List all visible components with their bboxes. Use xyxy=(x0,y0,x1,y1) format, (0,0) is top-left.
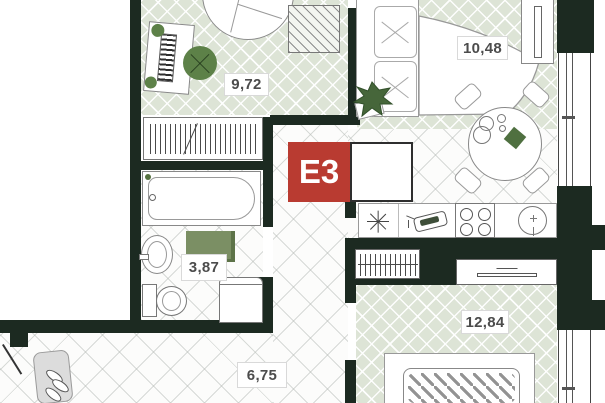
bathtub-inner xyxy=(148,177,255,220)
wall-right-column xyxy=(557,186,592,330)
wardrobe-hangers xyxy=(355,249,420,279)
tv-icon xyxy=(477,273,537,277)
bathtub xyxy=(142,171,261,226)
counter-divider xyxy=(398,204,399,237)
closet-hangers xyxy=(143,117,263,160)
dining-table xyxy=(468,107,542,181)
plate-icon xyxy=(473,126,491,144)
armchair-fold-line xyxy=(238,4,282,19)
toilet-tank xyxy=(142,284,157,317)
unit-code-badge: E3 xyxy=(288,142,350,202)
window-sill xyxy=(562,116,575,119)
cooktop xyxy=(455,203,495,238)
basin-inner xyxy=(147,241,167,268)
tap-line xyxy=(408,220,409,228)
washer-panel-line xyxy=(220,284,262,285)
wall-bath-right-upper xyxy=(263,161,273,227)
living-kitchen-area-label: 10,48 xyxy=(457,36,508,60)
tv-icon-top xyxy=(489,268,525,273)
hanging-clothes xyxy=(150,124,256,154)
wash-basin xyxy=(141,235,173,274)
wall-bedroom-left-lower xyxy=(345,360,356,403)
cup-icon xyxy=(499,125,506,132)
window-sill xyxy=(562,387,575,390)
burner-icon xyxy=(478,223,491,236)
tv-shelf xyxy=(456,259,557,285)
study-area-label: 9,72 xyxy=(224,73,269,96)
window-living xyxy=(558,53,591,186)
bathroom-area-label: 3,87 xyxy=(181,254,227,281)
wall-under-closet xyxy=(130,161,273,170)
burner-icon xyxy=(460,208,473,221)
toilet-bowl xyxy=(156,286,187,316)
wall-right-bump-upper xyxy=(592,225,605,250)
round-sink xyxy=(518,206,547,235)
tv-unit xyxy=(521,0,554,64)
bedroom-area-label: 12,84 xyxy=(461,310,509,334)
sink-cross xyxy=(530,218,537,219)
rail-line xyxy=(358,264,418,265)
cup-icon xyxy=(497,114,506,123)
washing-machine xyxy=(219,277,263,323)
wall-right-top xyxy=(557,0,594,53)
wall-mid-horizontal xyxy=(270,115,353,125)
faucet-icon xyxy=(404,209,454,234)
kitchen-sink-star-icon xyxy=(367,210,389,232)
wardrobe-hatched xyxy=(288,5,340,53)
toilet-bowl-inner xyxy=(162,291,181,311)
basin-tap xyxy=(139,254,149,260)
wall-right-bump-lower xyxy=(592,300,605,330)
wall-counter-stub xyxy=(345,201,356,218)
floor-plan: E3 9,72 10,48 3,87 6,75 12,84 xyxy=(0,0,605,403)
wall-entry-notch xyxy=(10,333,28,347)
wall-bedroom-left-upper xyxy=(345,285,356,303)
unit-badge-blank-box xyxy=(350,142,413,202)
desk-keyboard xyxy=(157,33,177,82)
tub-faucet-icon xyxy=(149,194,156,201)
tub-plant-dot xyxy=(145,174,151,180)
hallway-area-label: 6,75 xyxy=(237,362,287,388)
sink-drain xyxy=(533,227,534,236)
tv-screen xyxy=(534,6,542,58)
shoe-bench xyxy=(32,349,73,403)
sofa-cushion xyxy=(374,6,417,58)
mattress-pattern xyxy=(408,373,515,403)
burner-icon xyxy=(478,208,491,221)
napkin-icon xyxy=(504,127,527,150)
burner-icon xyxy=(460,223,473,236)
pouf xyxy=(183,46,217,80)
window-bedroom xyxy=(558,330,591,403)
mattress xyxy=(403,368,520,403)
plant-icon xyxy=(352,80,394,118)
desk-plant xyxy=(144,76,157,89)
bed xyxy=(384,353,535,403)
